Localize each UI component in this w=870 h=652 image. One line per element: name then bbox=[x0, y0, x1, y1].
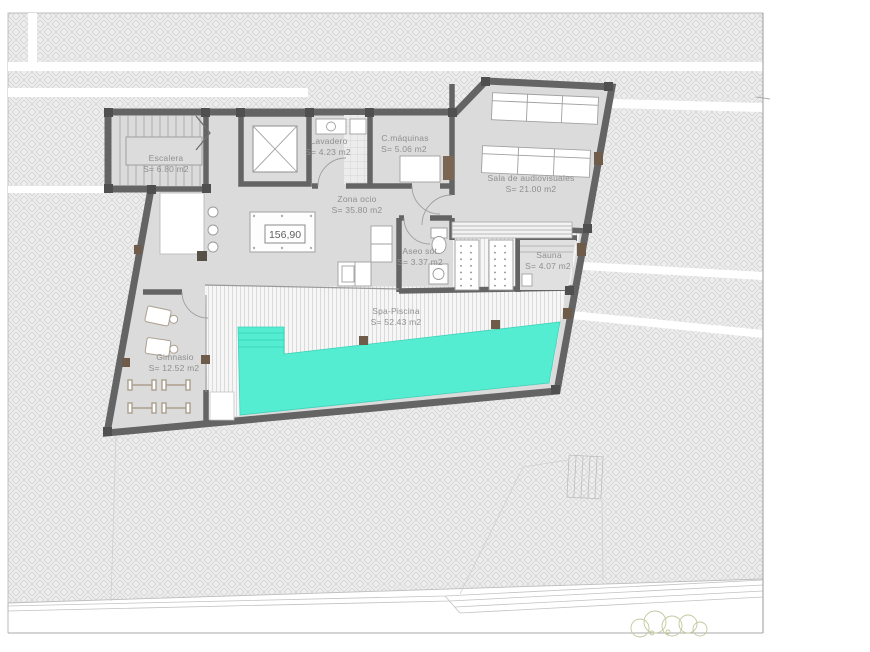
room-label-zona-ocio: Zona ocio bbox=[337, 194, 376, 204]
laundry-sink-icon bbox=[316, 119, 366, 134]
bench-slats bbox=[452, 222, 572, 238]
room-area-zona-ocio: S= 35.80 m2 bbox=[332, 205, 383, 215]
level-value-box: 156,90 bbox=[265, 225, 305, 243]
room-label-audiovisuales: Sala de audiovisuales bbox=[488, 173, 575, 183]
room-label-escalera: Escalera bbox=[149, 153, 184, 163]
bar-stools bbox=[208, 207, 218, 252]
room-area-escalera: S= 6.80 m2 bbox=[143, 164, 189, 174]
deck-mat bbox=[210, 392, 234, 420]
room-area-cmaquinas: S= 5.06 m2 bbox=[381, 144, 427, 154]
room-area-lavadero: S= 4.23 m2 bbox=[305, 147, 351, 157]
room-label-spa-piscina: Spa-Piscina bbox=[372, 306, 420, 316]
room-area-spa-piscina: S= 52.43 m2 bbox=[371, 317, 422, 327]
boiler-icon bbox=[443, 156, 454, 180]
room-area-aseo: S= 3.37 m2 bbox=[397, 257, 443, 267]
room-label-gimnasio: Gimnasio bbox=[156, 352, 194, 362]
room-area-audiovisuales: S= 21.00 m2 bbox=[506, 184, 557, 194]
floor-plan-drawing: Escalera S= 6.80 m2 Lavadero S= 4.23 m2 … bbox=[0, 0, 870, 652]
room-area-sauna: S= 4.07 m2 bbox=[525, 261, 571, 271]
machine-unit bbox=[400, 156, 440, 182]
sink-icon bbox=[429, 264, 448, 284]
room-area-gimnasio: S= 12.52 m2 bbox=[149, 363, 200, 373]
room-label-sauna: Sauna bbox=[536, 250, 562, 260]
bar-counter bbox=[160, 193, 204, 254]
floorplan-page: Escalera S= 6.80 m2 Lavadero S= 4.23 m2 … bbox=[0, 0, 870, 652]
room-label-lavadero: Lavadero bbox=[310, 136, 347, 146]
room-label-aseo: Aseo sót. bbox=[402, 246, 439, 256]
room-label-cmaquinas: C.máquinas bbox=[381, 133, 428, 143]
level-value: 156,90 bbox=[269, 229, 301, 241]
elevator-icon bbox=[241, 114, 309, 184]
